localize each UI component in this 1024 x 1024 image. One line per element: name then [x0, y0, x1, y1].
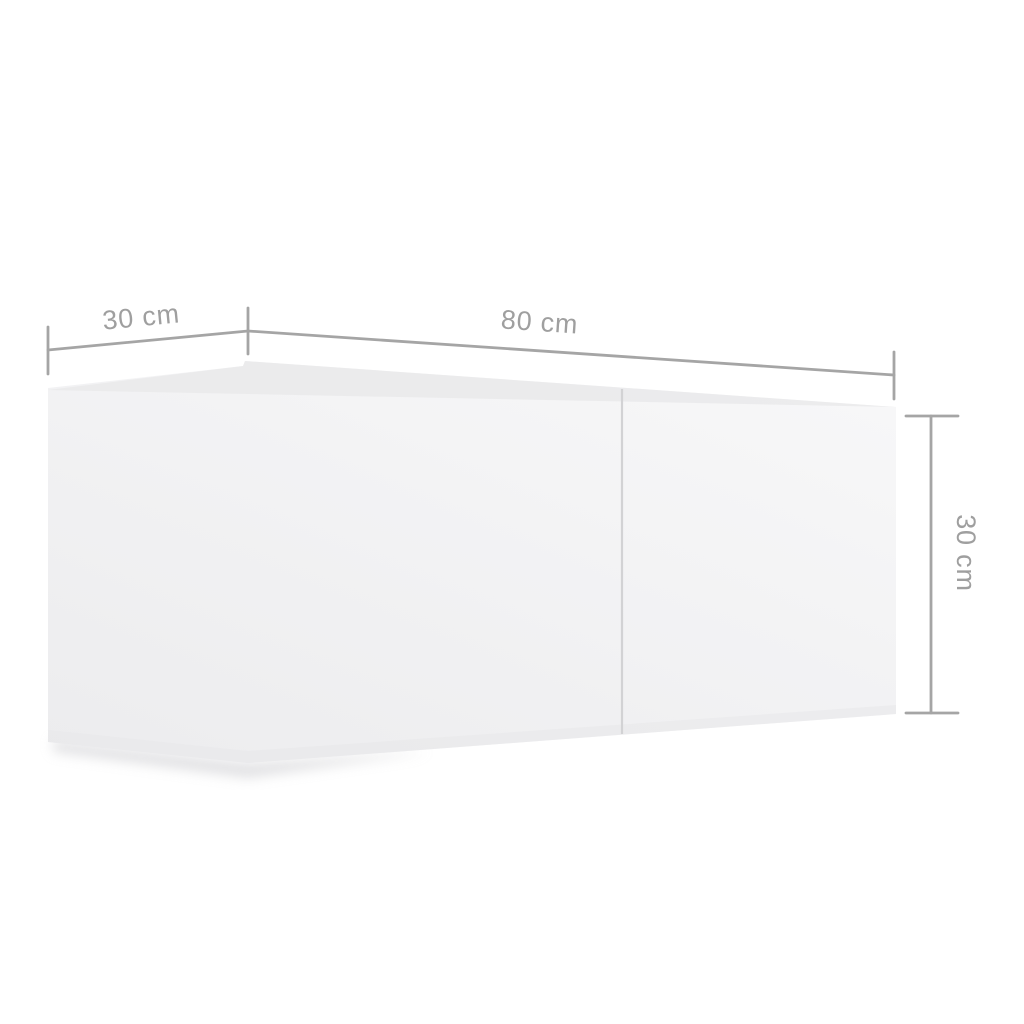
dimension-diagram-canvas: 30 cm 80 cm 30 cm	[0, 0, 1024, 1024]
height-dimension-label: 30 cm	[951, 514, 981, 592]
product-dimension-image: 30 cm 80 cm 30 cm	[0, 0, 1024, 1024]
width-dimension-label: 80 cm	[500, 304, 579, 339]
depth-dimension-label: 30 cm	[101, 298, 181, 335]
depth-dimension-line	[48, 331, 248, 350]
cabinet-body	[48, 361, 896, 763]
